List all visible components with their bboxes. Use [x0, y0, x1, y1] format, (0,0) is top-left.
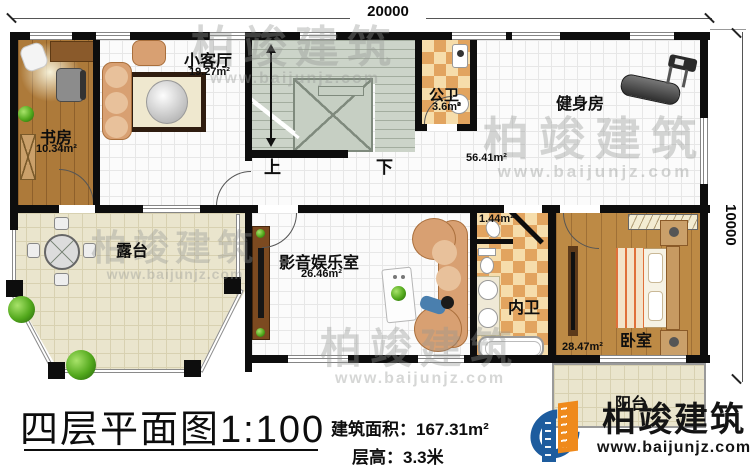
- rug-oval-motif: [146, 80, 188, 124]
- window: [418, 355, 464, 363]
- table-dot: [393, 275, 397, 279]
- label-bedroom: 卧室: [620, 327, 652, 351]
- building-area-value: 167.31m²: [416, 420, 489, 439]
- area-living: 19.27m²: [189, 66, 230, 78]
- building-area-label: 建筑面积：: [331, 420, 416, 439]
- wall-wc-right: [470, 40, 477, 131]
- wall-right: [700, 32, 708, 362]
- stair-direction-arrow: [270, 52, 272, 140]
- wall-left: [10, 32, 18, 230]
- balcony-door: [600, 355, 686, 363]
- dimension-height-label: 10000: [722, 204, 739, 246]
- company-name: 柏竣建筑: [597, 403, 750, 439]
- floor-height-value: 3.3米: [403, 448, 444, 467]
- lamp-icon: [669, 337, 679, 347]
- label-terrace: 露台: [116, 237, 148, 261]
- wall-stair-bottom: [245, 150, 348, 158]
- floor-height-line: 层高：3.3米: [352, 443, 444, 468]
- area-study: 10.34m²: [36, 143, 77, 155]
- window: [30, 32, 72, 40]
- window: [288, 355, 348, 363]
- bed-blanket: [616, 248, 644, 328]
- terrace-rail-right: [236, 214, 240, 284]
- extension-line: [710, 29, 746, 30]
- plan-title-scale: 1:100: [220, 409, 325, 451]
- area-inner-wc: 1.44m²: [479, 213, 514, 225]
- wall-innerwc-right: [548, 205, 556, 363]
- study-desk: [50, 41, 94, 62]
- treadmill-post: [666, 66, 673, 84]
- plan-title-main: 四层平面图: [20, 409, 220, 451]
- terrace-chair: [54, 273, 69, 286]
- toilet-tank: [478, 248, 496, 256]
- company-logo-text: 柏竣建筑 www.baijunjz.com: [597, 403, 750, 457]
- bath-sink: [478, 308, 498, 328]
- plant-icon: [256, 328, 265, 337]
- terrace-chair: [27, 243, 40, 258]
- stairs-right-flight: [375, 84, 415, 152]
- arrow-head-down-icon: [266, 138, 276, 147]
- door-gap-wc: [427, 124, 457, 131]
- dimension-tick: [731, 374, 742, 385]
- treadmill-belt: [619, 73, 682, 107]
- terrace-post: [48, 362, 65, 379]
- bush-icon: [8, 296, 35, 323]
- flower-bouquet-icon: [391, 286, 406, 301]
- area-media-room: 26.46m²: [301, 268, 342, 280]
- pillow: [648, 291, 663, 321]
- bookshelf: [20, 134, 36, 180]
- door-gap-innerwc: [504, 205, 542, 213]
- window: [452, 32, 506, 40]
- window: [512, 32, 560, 40]
- building-area-line: 建筑面积：167.31m²: [331, 415, 489, 440]
- sofa-cushion: [105, 66, 128, 88]
- door-gap-bedroom: [560, 205, 600, 213]
- bush-icon: [66, 350, 96, 380]
- sofa-cushion: [436, 266, 461, 291]
- wall-stair-left: [245, 40, 252, 161]
- area-bedroom: 28.47m²: [562, 341, 603, 353]
- dimension-width-label: 20000: [350, 3, 426, 20]
- elevator-door: [318, 86, 364, 96]
- door-gap-media: [258, 205, 298, 213]
- window: [210, 32, 245, 40]
- area-public-wc: 3.6m²: [432, 101, 461, 113]
- terrace-table: [44, 234, 80, 270]
- wall-wc-left: [415, 40, 422, 131]
- washer-drum-icon: [457, 50, 464, 57]
- sofa-cushion: [105, 116, 128, 138]
- headboard: [666, 246, 680, 330]
- sofa-cushion: [105, 92, 128, 114]
- toilet-bowl: [480, 257, 494, 274]
- window: [700, 118, 708, 184]
- terrace-post: [6, 280, 23, 297]
- armchair: [132, 40, 166, 66]
- wall-innerwc-divider: [477, 239, 513, 244]
- tv-screen: [258, 248, 264, 318]
- pillow: [648, 253, 663, 283]
- treadmill-post: [682, 69, 689, 87]
- logo-building-orange-icon: [558, 401, 578, 454]
- terrace-post: [224, 277, 241, 294]
- sofa-cushion: [432, 240, 457, 265]
- wall-study-right: [93, 40, 100, 205]
- wall-innerwc-left: [470, 205, 477, 363]
- door-gap-study: [59, 205, 95, 213]
- chair-back: [80, 70, 86, 100]
- window: [630, 32, 674, 40]
- terrace-post: [184, 360, 201, 377]
- terrace-chair: [83, 243, 96, 258]
- label-stairs-up: 上: [264, 153, 281, 178]
- person-head: [441, 296, 454, 309]
- company-url: www.baijunjz.com: [597, 439, 750, 457]
- plant-icon: [18, 106, 34, 122]
- logo-windows: [545, 422, 551, 458]
- bath-sink: [478, 280, 498, 300]
- terrace-chair: [54, 217, 69, 230]
- label-gym: 健身房: [556, 90, 604, 114]
- area-gym: 56.41m²: [466, 152, 507, 164]
- table-dot: [401, 275, 405, 279]
- wall-middle: [10, 205, 710, 213]
- bathtub-basin: [485, 341, 541, 356]
- window: [300, 32, 336, 40]
- company-logo-icon: [532, 400, 594, 468]
- dimension-line-right: [742, 32, 743, 382]
- window: [96, 32, 130, 40]
- label-inner-wc: 内卫: [508, 294, 540, 318]
- logo-windows: [561, 407, 567, 448]
- arrow-head-up-icon: [266, 44, 276, 53]
- window-terrace-door: [143, 205, 200, 213]
- logo-building-blue-icon: [542, 418, 556, 462]
- floor-plan-canvas: 20000 10000: [0, 0, 750, 474]
- floor-height-label: 层高：: [352, 448, 403, 467]
- plan-title: 四层平面图1:100: [20, 398, 325, 453]
- lamp-icon: [669, 227, 679, 237]
- bedroom-tv: [571, 252, 575, 330]
- wall-media-left: [245, 205, 252, 372]
- label-stairs-down: 下: [376, 153, 393, 178]
- title-underline: [24, 449, 318, 451]
